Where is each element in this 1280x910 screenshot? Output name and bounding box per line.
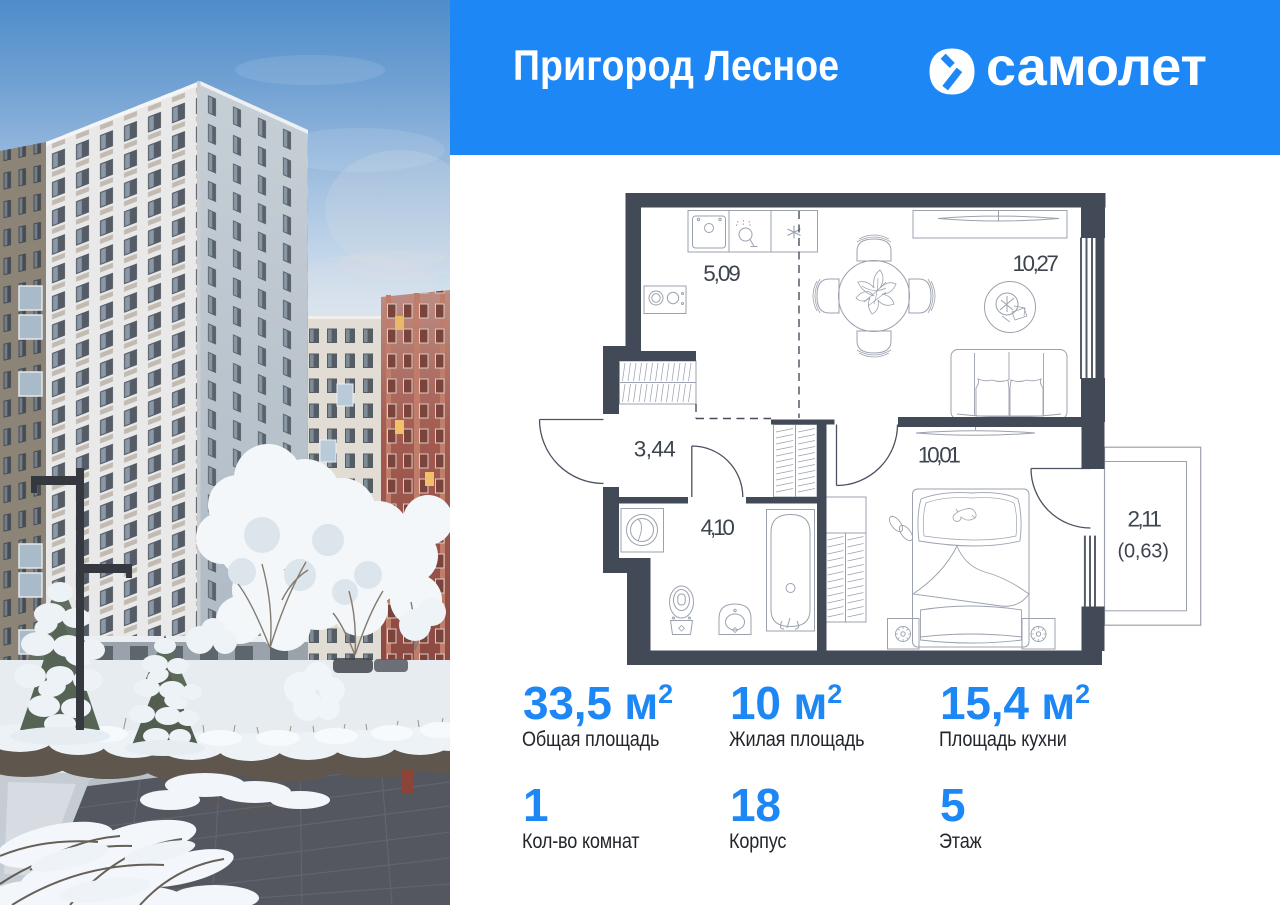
svg-text:2,11: 2,11 <box>1127 506 1162 531</box>
svg-text:4,10: 4,10 <box>701 515 735 540</box>
svg-text:5,09: 5,09 <box>703 261 741 286</box>
svg-text:(0,63): (0,63) <box>1117 541 1169 563</box>
svg-text:10,27: 10,27 <box>1012 251 1059 276</box>
svg-text:10,01: 10,01 <box>918 443 961 468</box>
svg-text:3,44: 3,44 <box>634 436 676 461</box>
